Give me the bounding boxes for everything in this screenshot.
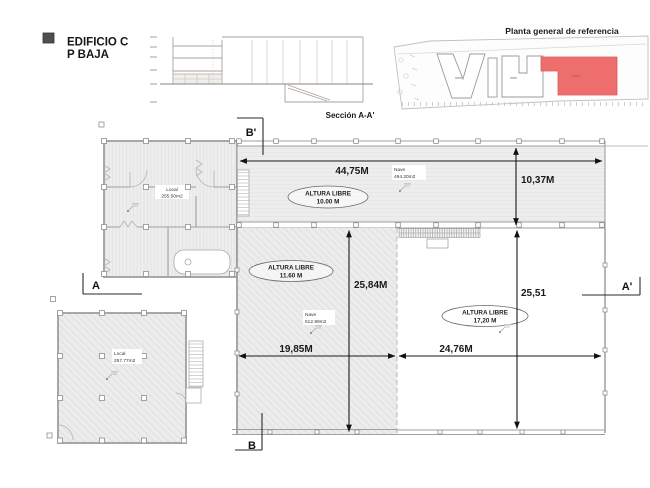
height-title: ALTURA LIBRE xyxy=(305,191,351,198)
room-type: Local xyxy=(166,187,177,193)
plan-upper-left-local: Local 255.50m2 xyxy=(99,122,237,277)
height-value: 11.60 M xyxy=(280,273,302,280)
room-area: 494.20m2 xyxy=(394,174,416,180)
marker-b: B xyxy=(248,440,256,452)
dim-top-width: 44,75M xyxy=(335,166,368,177)
plan-right-hall: ALTURA LIBRE 17,20 M 24,76M 25,51 xyxy=(397,228,607,435)
bullet-square-icon xyxy=(43,33,54,43)
plan-lower-left-local: Local 257.77m2 xyxy=(47,297,203,444)
room-area: 255.50m2 xyxy=(161,194,183,200)
plan-top-band-nave: 44,75M ALTURA LIBRE 10.00 M Nave 494.20m… xyxy=(237,139,648,228)
room-type: Nave xyxy=(394,167,406,173)
sheet-title-line1: EDIFICIO C xyxy=(67,37,128,49)
room-type: Local xyxy=(114,351,125,357)
stairs xyxy=(238,170,250,216)
room-type: Nave xyxy=(305,312,317,318)
marker-b-prime: B' xyxy=(246,127,257,139)
dim-right-width: 24,76M xyxy=(439,344,472,355)
site-plan-title: Planta general de referencia xyxy=(505,26,619,36)
dim-mid-height: 25,84M xyxy=(354,280,387,291)
stairs xyxy=(189,341,203,387)
drawing-canvas: EDIFICIO C P BAJA Sección A-A' Planta ge… xyxy=(0,0,650,488)
room-area: 257.77m2 xyxy=(114,358,136,364)
plan-middle-nave: ALTURA LIBRE 11.60 M Nave 512.99m2 25,84… xyxy=(232,228,397,435)
section-aa-drawing: Sección A-A' xyxy=(150,37,374,120)
marker-a: A xyxy=(92,280,100,292)
floor-plan-sheet: EDIFICIO C P BAJA Sección A-A' Planta ge… xyxy=(0,0,650,488)
dim-band-height: 10,37M xyxy=(521,175,554,186)
dim-mid-width: 19,85M xyxy=(279,344,312,355)
sheet-title-line2: P BAJA xyxy=(67,49,109,61)
height-title: ALTURA LIBRE xyxy=(462,310,508,317)
height-value: 10.00 M xyxy=(317,199,340,206)
site-building-a2 xyxy=(488,58,497,97)
stair-landing xyxy=(186,388,201,403)
small-booth xyxy=(427,239,448,248)
marker-a-prime: A' xyxy=(622,281,633,293)
room-area: 512.99m2 xyxy=(305,319,327,325)
sheet-header: EDIFICIO C P BAJA xyxy=(43,33,128,61)
height-value: 17,20 M xyxy=(474,318,497,325)
dim-right-height: 25,51 xyxy=(521,288,546,299)
site-key-plan: Planta general de referencia xyxy=(394,26,648,109)
height-title: ALTURA LIBRE xyxy=(268,265,314,272)
section-label: Sección A-A' xyxy=(326,111,375,120)
